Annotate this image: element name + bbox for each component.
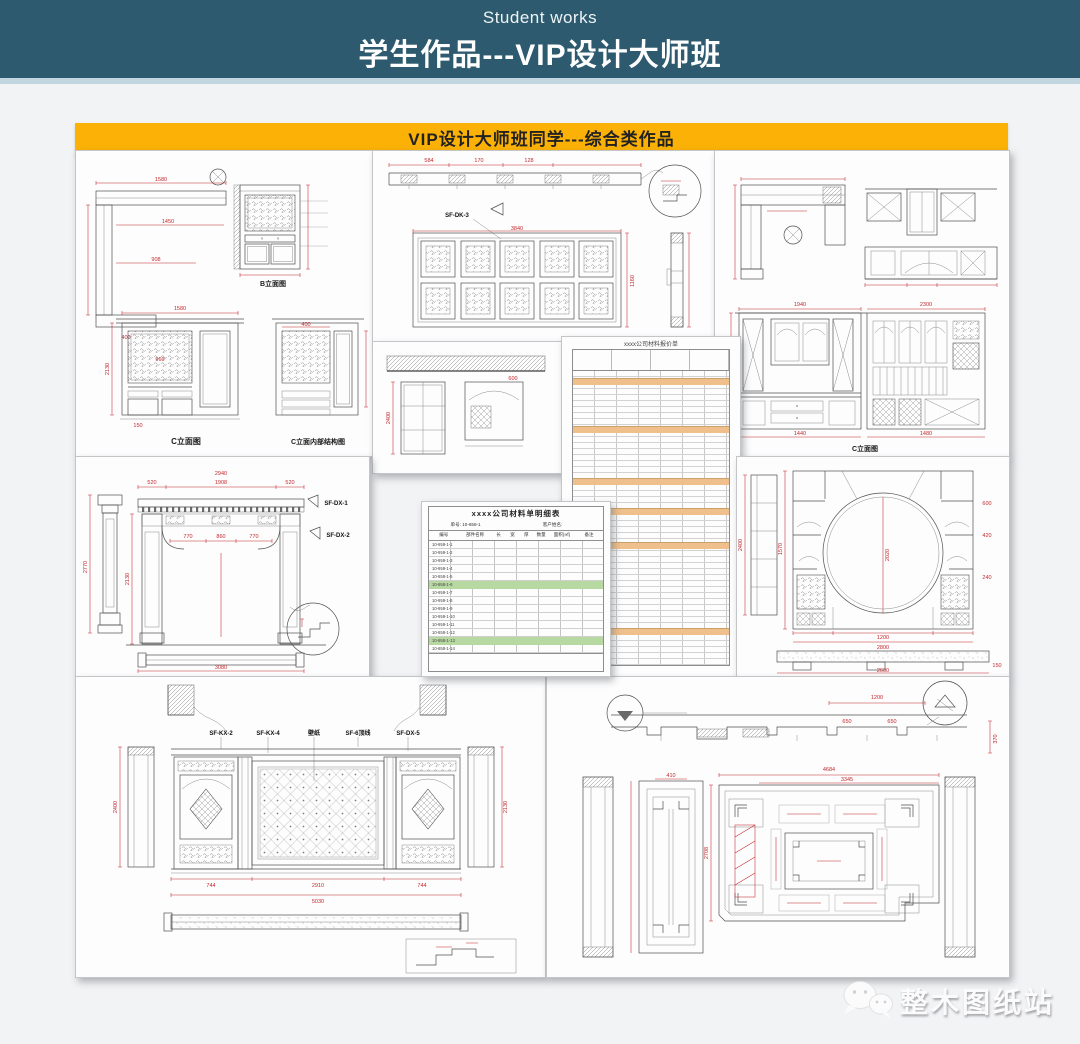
svg-text:650: 650 (887, 719, 896, 725)
svg-text:4684: 4684 (823, 767, 835, 773)
lower-elevation: 1940 2300 2710 1440 1480 C立面图 (724, 302, 985, 453)
section-band (573, 378, 729, 385)
customer-label: 客户姓名: (502, 522, 603, 528)
svg-text:370: 370 (993, 734, 999, 743)
section-band (573, 478, 729, 485)
svg-text:2770: 2770 (83, 561, 89, 573)
svg-text:2130: 2130 (503, 801, 509, 813)
page: { "header": { "subtitle": "Student works… (0, 0, 1080, 1044)
row-code: 10-658-1-6 (432, 581, 455, 589)
svg-text:2940: 2940 (215, 471, 227, 477)
cad-cabinet-elevations: 1580 1450 908 400 B立面图 1580 2130 960 150… (76, 151, 372, 456)
moon-gate-wall: 2020 1570 600 420 240 (778, 471, 992, 629)
svg-text:1160: 1160 (630, 275, 636, 287)
svg-text:1940: 1940 (794, 302, 806, 308)
svg-text:1480: 1480 (920, 431, 932, 437)
svg-text:128: 128 (524, 158, 533, 164)
side-section (667, 233, 691, 327)
cad-moon-gate: 2400 2020 1570 600 420 240 1200 2800 260… (737, 457, 1009, 676)
header-band: Student works 学生作品---VIP设计大师班 (0, 0, 1080, 78)
svg-text:170: 170 (474, 158, 483, 164)
sheet-kitchen-elevations: 1940 2300 2710 1440 1480 C立面图 (714, 150, 1010, 457)
label-sf-dk-3: SF-DK-3 (445, 213, 469, 219)
row-code: 10-658-1-12 (432, 629, 455, 637)
caption-elevation-c-inner: C立面内部结构图 (291, 437, 345, 446)
svg-text:2600: 2600 (877, 668, 889, 674)
row-code: 10-658-1-4 (432, 565, 455, 573)
order-no: 单号: 10-658-1 (429, 522, 502, 528)
svg-text:1908: 1908 (215, 480, 227, 486)
base-bench: 2600 150 (777, 651, 1002, 674)
svg-text:960: 960 (155, 357, 164, 363)
sheet-coffered-panel: 584 170 128 SF-DK-3 3840 1160 (372, 150, 715, 342)
svg-text:5030: 5030 (312, 899, 324, 905)
svg-text:1450: 1450 (162, 219, 174, 225)
svg-text:1580: 1580 (174, 306, 186, 312)
label-wallpaper: 壁纸 (308, 729, 320, 737)
svg-text:410: 410 (666, 773, 675, 779)
sheet-ceiling-plan: 1200 650 650 370 410 (546, 676, 1010, 978)
ceiling-section-profile: 1200 650 650 370 (607, 681, 999, 753)
label-sf-dx-2: SF-DX-2 (326, 533, 350, 539)
svg-text:400: 400 (301, 322, 310, 328)
section-band: 584 170 128 (389, 158, 641, 189)
svg-text:520: 520 (285, 480, 294, 486)
col-header: 长 (492, 532, 506, 538)
svg-text:2400: 2400 (386, 412, 392, 424)
portal-labels: SF-DX-1 SF-DX-2 (308, 495, 350, 539)
wechat-icon (838, 978, 900, 1024)
label-sf-dx-1: SF-DX-1 (324, 501, 348, 507)
sheet-material-table: xxxx公司材料单明细表 单号: 10-658-1 客户姓名: 编号 部件名称 … (421, 501, 611, 677)
svg-text:600: 600 (982, 501, 991, 507)
svg-text:420: 420 (982, 533, 991, 539)
quote-sheet-title: xxxx公司材料报价单 (562, 339, 740, 348)
label-sf-kx-2: SF-KX-2 (209, 731, 233, 737)
row-code: 10-658-1-7 (432, 589, 455, 597)
table-footer (429, 653, 603, 668)
row-code: 10-658-1-2 (432, 549, 455, 557)
upper-elevation (865, 189, 997, 287)
cad-portal-frame: 2770 2940 520 1908 520 770 860 770 2130 … (76, 457, 369, 676)
caption-elevation-b: B立面图 (260, 279, 286, 288)
col-header: 宽 (506, 532, 520, 538)
svg-text:2400: 2400 (738, 539, 744, 551)
sheet-tv-wall: SF-KX-2 SF-KX-4 壁纸 SF-6顶线 SF-DX-5 2400 2… (75, 676, 546, 978)
label-sf-6-topline: SF-6顶线 (345, 729, 370, 737)
page-title: 学生作品---VIP设计大师班 (0, 30, 1080, 74)
col-header: 面积(㎡) (549, 532, 575, 538)
right-wall-strip (945, 777, 975, 957)
svg-text:908: 908 (151, 257, 160, 263)
elevation-b: B立面图 (234, 185, 328, 288)
row-codes: 10-658-1-1 10-658-1-2 10-658-1-3 10-658-… (432, 541, 455, 653)
svg-text:1570: 1570 (778, 543, 784, 555)
dim-chains: 1200 2800 (793, 631, 973, 651)
svg-text:3080: 3080 (215, 665, 227, 671)
header-subtitle: Student works (0, 8, 1080, 28)
row-code: 10-658-1-11 (432, 621, 455, 629)
col-header: 备注 (575, 532, 603, 538)
bottom-detail (406, 939, 516, 973)
row-code: 10-658-1-5 (432, 573, 455, 581)
svg-text:600: 600 (508, 376, 517, 382)
svg-text:2910: 2910 (312, 883, 324, 889)
svg-text:2020: 2020 (885, 549, 891, 561)
svg-text:2800: 2800 (877, 645, 889, 651)
svg-text:584: 584 (424, 158, 433, 164)
portal-elevation: 2940 520 1908 520 770 860 770 2130 (125, 471, 326, 645)
material-table-title: xxxx公司材料单明细表 (429, 508, 603, 519)
row-code: 10-658-1-8 (432, 597, 455, 605)
cad-wall-fragment: 2400 600 (373, 342, 561, 473)
plan-view: 1580 1450 908 400 (86, 169, 226, 341)
sheet-portal-frame: 2770 2940 520 1908 520 770 860 770 2130 … (75, 456, 370, 677)
quote-sheet-header (573, 350, 729, 371)
cad-ceiling-plan: 1200 650 650 370 410 (547, 677, 1009, 977)
cabinet-fragments (401, 382, 523, 454)
cad-coffered-panel: 584 170 128 SF-DK-3 3840 1160 (373, 151, 714, 341)
coffered-grid: 3840 1160 (413, 226, 636, 327)
svg-text:770: 770 (183, 534, 192, 540)
header-accent-strip (0, 78, 1080, 84)
svg-text:150: 150 (133, 423, 142, 429)
sheet-cabinet-elevations: 1580 1450 908 400 B立面图 1580 2130 960 150… (75, 150, 373, 457)
svg-text:744: 744 (206, 883, 215, 889)
sheet-wall-fragment: 2400 600 (372, 341, 562, 474)
col-header: 数量 (533, 532, 549, 538)
label-sf-kx-4: SF-KX-4 (256, 731, 280, 737)
ceiling-plan-view: 4684 3345 2708 (704, 767, 939, 921)
material-table-frame: xxxx公司材料单明细表 单号: 10-658-1 客户姓名: 编号 部件名称 … (428, 506, 604, 672)
svg-text:2130: 2130 (125, 573, 131, 585)
svg-text:2708: 2708 (704, 847, 710, 859)
row-code: 10-658-1-3 (432, 557, 455, 565)
cad-kitchen-elevations: 1940 2300 2710 1440 1480 C立面图 (715, 151, 1009, 456)
svg-text:1580: 1580 (155, 177, 167, 183)
row-code: 10-658-1-10 (432, 613, 455, 621)
svg-text:1440: 1440 (794, 431, 806, 437)
side-bookcase: 2400 (738, 475, 777, 615)
caption-elevation-c: C立面图 (171, 436, 201, 446)
svg-text:650: 650 (842, 719, 851, 725)
svg-text:744: 744 (417, 883, 426, 889)
svg-text:1200: 1200 (877, 635, 889, 641)
watermark-label: 整木图纸站 (900, 981, 1055, 1021)
row-code: 10-658-1-1 (432, 541, 455, 549)
row-code: 10-658-1-9 (432, 605, 455, 613)
svg-text:770: 770 (249, 534, 258, 540)
detail-circle (287, 603, 339, 655)
panel-label: SF-DK-3 (445, 203, 503, 239)
caption-elevation-c2: C立面图 (852, 444, 878, 453)
svg-text:1200: 1200 (871, 695, 883, 701)
highlight-row-green (429, 581, 603, 589)
svg-text:2400: 2400 (113, 801, 119, 813)
highlight-row-green (429, 637, 603, 645)
watermark: 整木图纸站 (838, 978, 1055, 1024)
fretwork-door-panel: 410 (631, 773, 703, 953)
tufted-panel (260, 769, 376, 857)
row-code: 10-658-1-14 (432, 645, 455, 653)
side-column: 2770 (83, 495, 122, 633)
svg-text:520: 520 (147, 480, 156, 486)
svg-text:150: 150 (992, 663, 1001, 669)
svg-text:3345: 3345 (841, 777, 853, 783)
corner-details (168, 685, 446, 731)
dim-chains: 744 2910 744 5030 (171, 877, 461, 905)
elevation-c-inner: 400 C立面内部结构图 (272, 319, 368, 446)
detail-circle (641, 165, 701, 217)
svg-text:240: 240 (982, 575, 991, 581)
left-section-strip: 2400 (113, 747, 154, 867)
svg-text:860: 860 (216, 534, 225, 540)
row-code: 10-658-1-13 (432, 637, 455, 645)
col-header: 部件名称 (459, 532, 492, 538)
left-wall-strip (583, 777, 613, 957)
wall-elevation (171, 749, 461, 873)
kitchen-plan (733, 177, 845, 279)
col-header: 厚 (519, 532, 533, 538)
right-section-strip: 2130 (468, 747, 509, 867)
ceiling-hatch-band (387, 356, 545, 371)
label-sf-dx-5: SF-DX-5 (396, 731, 420, 737)
plan-section (164, 913, 468, 931)
section-band (573, 426, 729, 433)
material-table-headers: 编号 部件名称 长 宽 厚 数量 面积(㎡) 备注 (429, 530, 603, 541)
sheet-moon-gate: 2400 2020 1570 600 420 240 1200 2800 260… (736, 456, 1010, 677)
col-header: 编号 (429, 532, 459, 538)
cad-tv-wall: SF-KX-2 SF-KX-4 壁纸 SF-6顶线 SF-DX-5 2400 2… (76, 677, 545, 977)
svg-text:2300: 2300 (920, 302, 932, 308)
bottom-section: 3080 (138, 653, 304, 673)
svg-text:2130: 2130 (105, 363, 111, 375)
